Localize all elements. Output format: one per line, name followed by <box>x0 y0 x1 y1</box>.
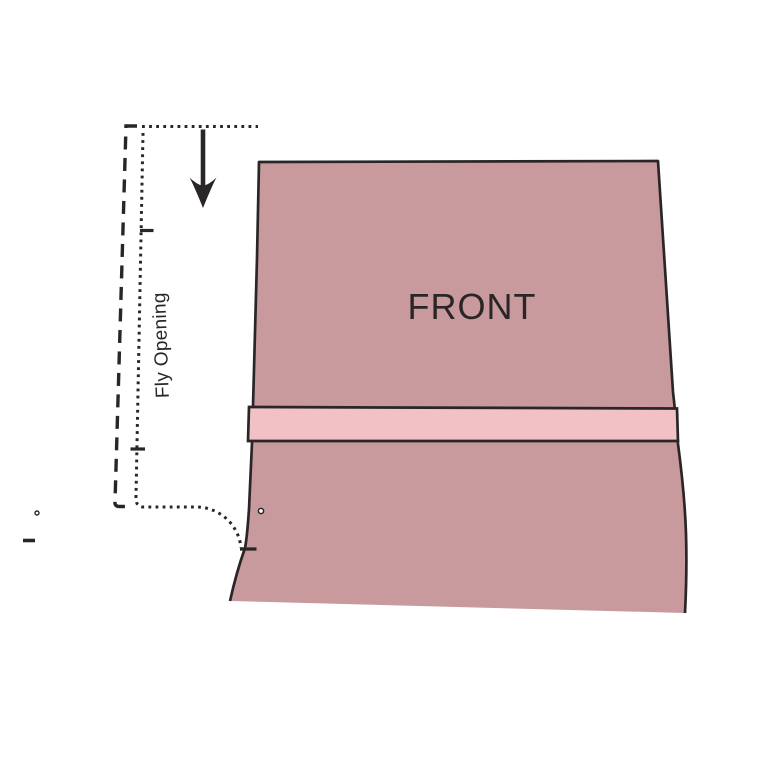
waistband-strip <box>248 407 678 441</box>
down-arrow-icon <box>190 130 217 209</box>
front-piece-label: FRONT <box>408 286 537 327</box>
fly-opening-label: Fly Opening <box>149 292 174 398</box>
drill-dot-left <box>35 511 39 515</box>
drill-dot-piece <box>258 508 263 513</box>
sewing-pattern-diagram: FRONT Fly Opening <box>0 0 768 768</box>
pattern-diagram-svg: FRONT Fly Opening <box>0 0 768 768</box>
pattern-piece-front-shape <box>230 161 686 613</box>
